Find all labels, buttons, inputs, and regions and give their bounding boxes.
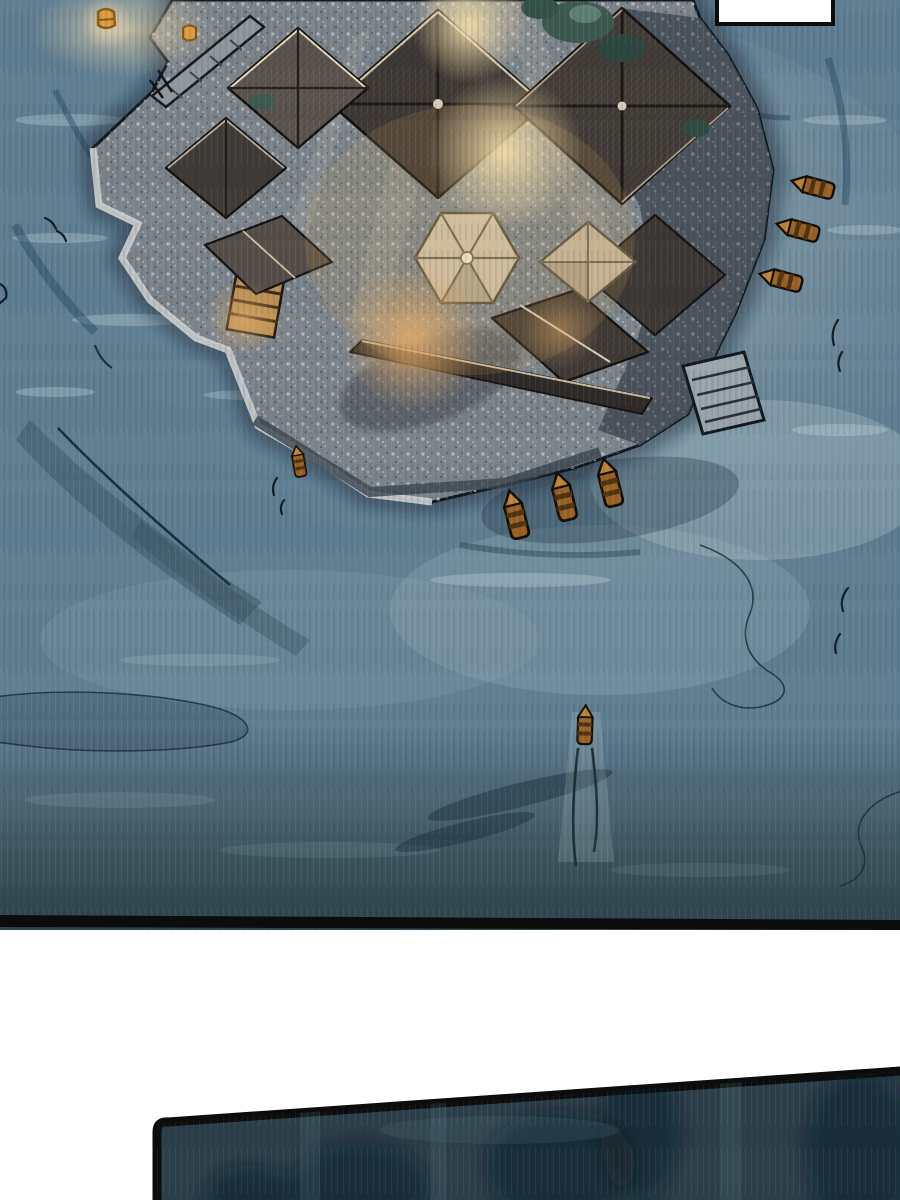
panel-dark-water — [0, 1056, 900, 1200]
speech-bubble-fragment — [715, 0, 835, 26]
panel-island-aerial — [0, 0, 900, 930]
paper-texture — [0, 0, 900, 930]
